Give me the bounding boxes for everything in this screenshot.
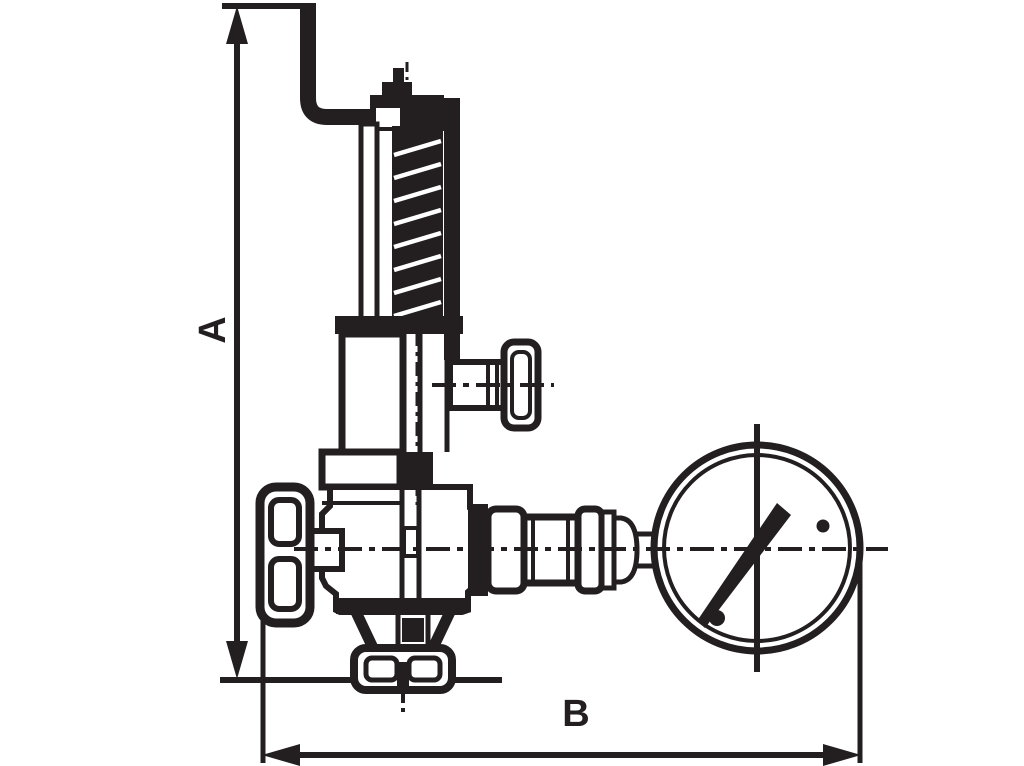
dim-b-arrowhead-right	[823, 744, 861, 766]
outlet-stem	[397, 662, 409, 690]
front-handwheel	[260, 487, 310, 623]
gauge-pivot-dot-lower	[709, 610, 725, 626]
coil-spring	[392, 126, 443, 324]
outlet-assembly	[354, 612, 452, 712]
dim-b-arrowhead-left	[262, 744, 300, 766]
spring-housing	[342, 334, 403, 452]
body-slot	[404, 528, 418, 556]
dim-a-label: A	[192, 316, 234, 343]
dim-b-label: B	[562, 693, 589, 735]
valve-technical-drawing: A B	[0, 0, 1024, 766]
dim-a-arrowhead-down	[226, 641, 248, 679]
spring-cap-window	[376, 108, 400, 127]
bonnet-flange	[322, 452, 400, 487]
drawing-canvas: A B	[0, 0, 1024, 766]
gauge-pivot-dot-upper	[817, 520, 830, 533]
adjusting-stem-tip	[393, 68, 404, 84]
yoke-left-post	[361, 124, 377, 324]
funnel-plug	[402, 618, 424, 642]
dim-a-arrowhead-up	[226, 6, 248, 44]
